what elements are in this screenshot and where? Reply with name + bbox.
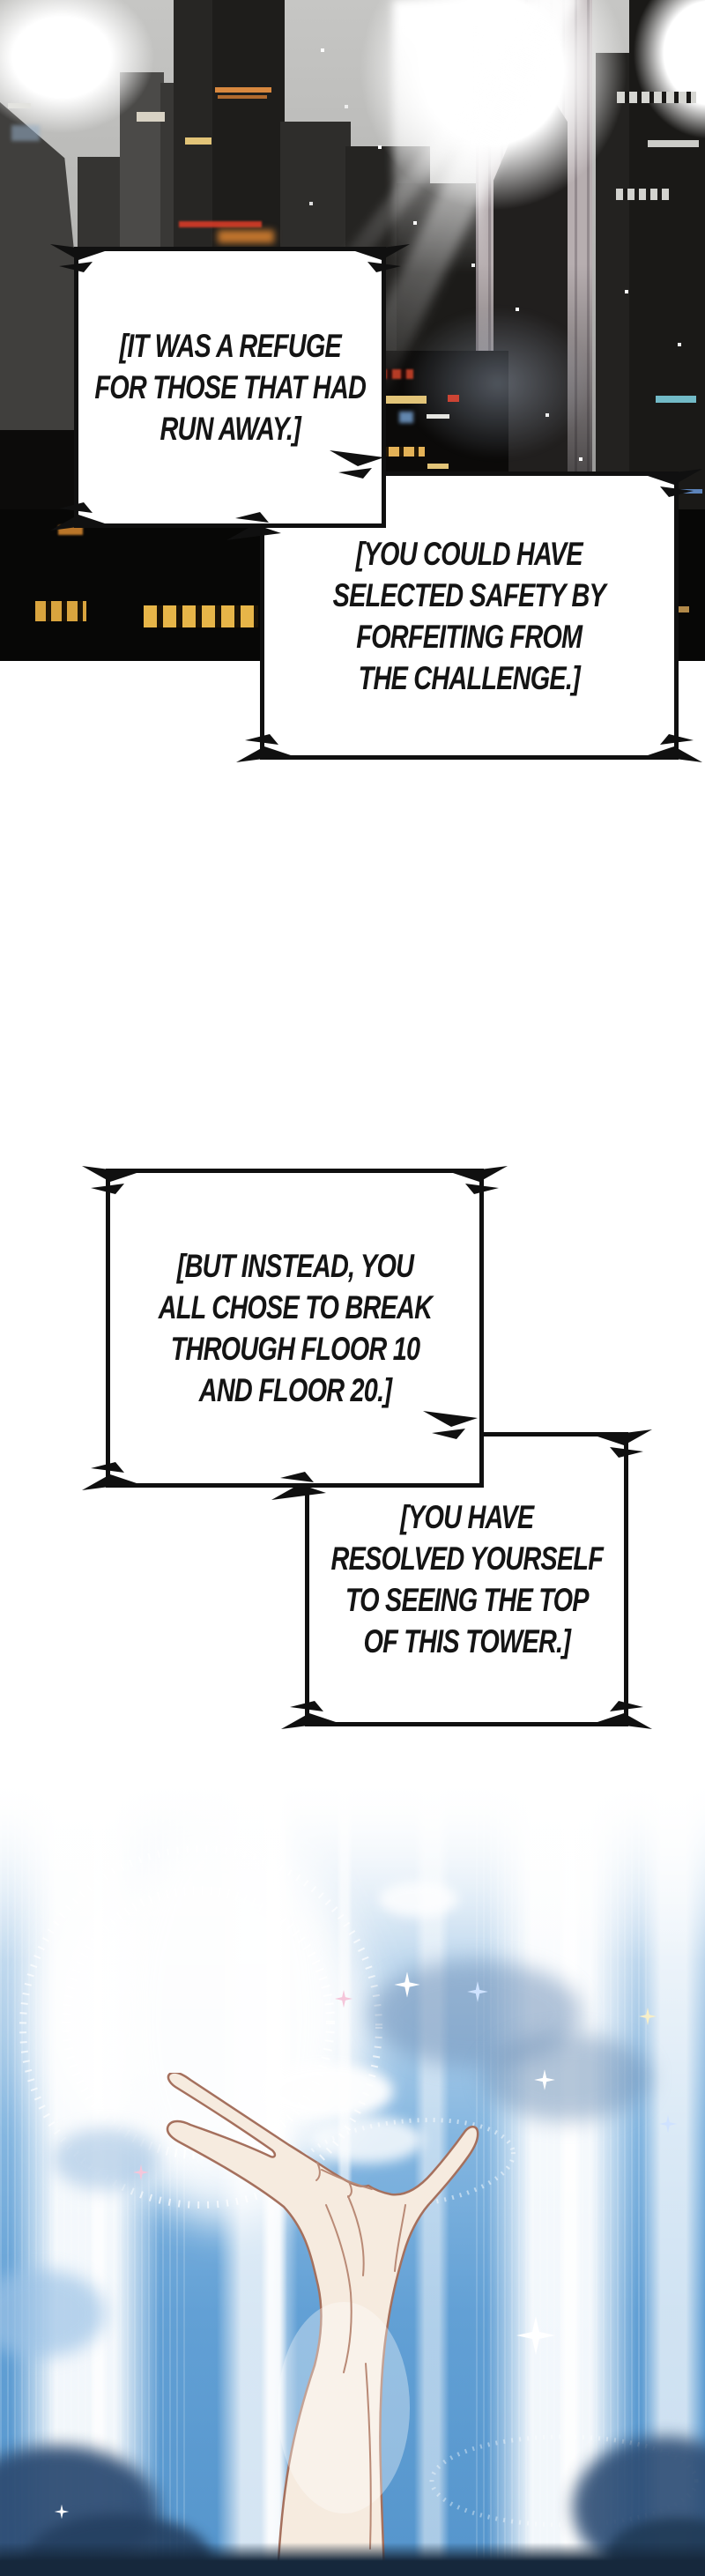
horizon-dark-strip xyxy=(0,2543,705,2576)
comic-page: [YOU COULD HAVE SELECTED SAFETY BY FORFE… xyxy=(0,0,705,2576)
window-specks xyxy=(0,0,2,2)
jagged-corner-icon xyxy=(597,1699,654,1731)
jagged-corner-icon xyxy=(225,510,281,542)
window-light xyxy=(8,103,31,108)
cloud xyxy=(379,1882,458,1917)
window-light xyxy=(399,412,413,423)
jagged-corner-icon xyxy=(648,467,704,499)
narration-line: AND FLOOR 20.] xyxy=(158,1370,431,1411)
sparkle-icon xyxy=(515,2314,557,2357)
narration-line: SELECTED SAFETY BY xyxy=(333,575,605,616)
sparkle-icon xyxy=(466,1980,489,2003)
neon-sign xyxy=(179,221,262,227)
jagged-corner-icon xyxy=(597,1428,654,1459)
narration-line: TO SEEING THE TOP xyxy=(330,1579,603,1621)
sparkle-icon xyxy=(658,2114,678,2134)
window-light xyxy=(384,396,427,404)
narration-line: THE CHALLENGE.] xyxy=(333,657,605,699)
narration-line: [BUT INSTEAD, YOU xyxy=(158,1245,431,1287)
sparkle-icon xyxy=(334,1989,353,2008)
narration-text: [BUT INSTEAD, YOU ALL CHOSE TO BREAK THR… xyxy=(158,1245,431,1411)
narration-line: RESOLVED YOURSELF xyxy=(330,1538,603,1579)
narration-line: RUN AWAY.] xyxy=(94,408,366,449)
narration-text: [YOU HAVE RESOLVED YOURSELF TO SEEING TH… xyxy=(330,1496,603,1662)
jagged-corner-icon xyxy=(80,1164,137,1196)
jagged-corner-icon xyxy=(234,732,291,764)
narration-line: [IT WAS A REFUGE xyxy=(94,325,366,367)
box-join-patch xyxy=(264,476,377,519)
cloud xyxy=(483,2033,650,2121)
window-light xyxy=(648,140,699,147)
jagged-corner-icon xyxy=(270,1470,326,1502)
jagged-corner-icon xyxy=(648,732,704,764)
window-light xyxy=(448,395,459,402)
jagged-corner-icon xyxy=(279,1699,336,1731)
window-light xyxy=(427,464,449,469)
window-light xyxy=(185,137,211,145)
narration-line: THROUGH FLOOR 10 xyxy=(158,1328,431,1370)
window-light xyxy=(218,95,267,99)
jagged-corner-icon xyxy=(80,1460,137,1492)
window-light xyxy=(11,125,40,141)
sparkle-icon xyxy=(54,2504,70,2520)
narration-text: [IT WAS A REFUGE FOR THOSE THAT HAD RUN … xyxy=(94,325,366,449)
narration-line: [YOU COULD HAVE xyxy=(333,533,605,575)
jagged-corner-icon xyxy=(421,1409,478,1441)
window-light xyxy=(617,92,696,103)
narration-text: [YOU COULD HAVE SELECTED SAFETY BY FORFE… xyxy=(333,533,605,699)
narration-line: OF THIS TOWER.] xyxy=(330,1621,603,1662)
window-light xyxy=(427,414,449,419)
jagged-corner-icon xyxy=(328,449,384,480)
jagged-corner-icon xyxy=(453,1164,509,1196)
window-light xyxy=(137,112,165,122)
jagged-corner-icon xyxy=(48,242,105,274)
narration-line: [YOU HAVE xyxy=(330,1496,603,1538)
flare-orange xyxy=(218,230,274,243)
window-light xyxy=(144,605,258,627)
window-light xyxy=(616,189,671,200)
box-join-patch xyxy=(309,1436,475,1479)
sparkle-icon xyxy=(533,2068,556,2091)
window-light xyxy=(656,396,696,403)
jagged-corner-icon xyxy=(48,501,105,532)
reaching-hand xyxy=(141,2073,493,2576)
sky-light-panel xyxy=(0,1749,705,2576)
narration-line: ALL CHOSE TO BREAK xyxy=(158,1287,431,1328)
sparkle-icon xyxy=(638,2007,657,2026)
window-light xyxy=(35,601,86,621)
window-light xyxy=(215,87,271,93)
narration-line: FORFEITING FROM xyxy=(333,616,605,657)
jagged-corner-icon xyxy=(355,242,412,274)
sparkle-icon xyxy=(393,1971,421,1999)
narration-line: FOR THOSE THAT HAD xyxy=(94,367,366,408)
